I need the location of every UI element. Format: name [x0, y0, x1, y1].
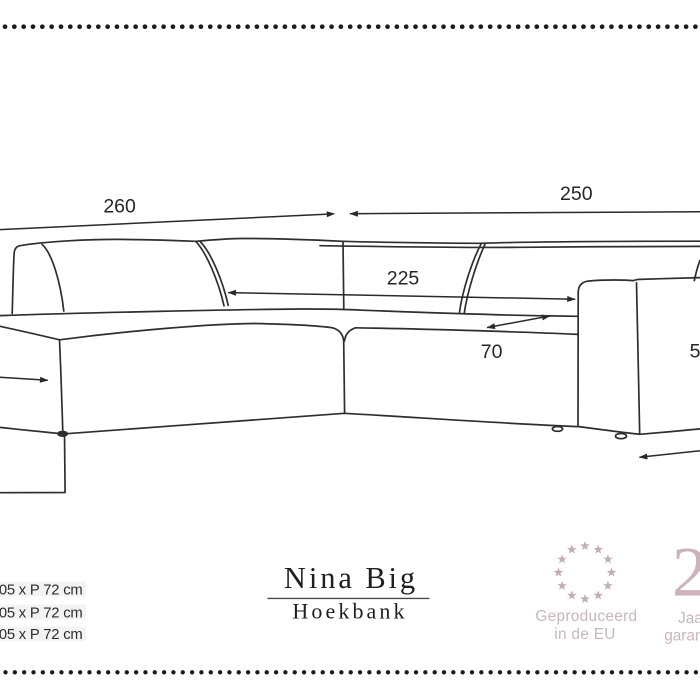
svg-text:Nina Big: Nina Big [284, 561, 418, 595]
svg-text:Geproduceerd: Geproduceerd [535, 608, 637, 625]
svg-text:250: 250 [560, 183, 593, 205]
svg-text:Jaar: Jaar [678, 610, 700, 627]
svg-text:260: 260 [103, 195, 136, 217]
svg-text:225: 225 [387, 268, 420, 290]
svg-text:105 x P 72 cm: 105 x P 72 cm [0, 627, 83, 643]
svg-text:garantie: garantie [664, 627, 700, 644]
svg-text:105 x P 72 cm: 105 x P 72 cm [0, 583, 83, 599]
svg-text:50: 50 [690, 341, 700, 363]
svg-text:2: 2 [672, 534, 700, 612]
svg-text:Hoekbank: Hoekbank [292, 598, 407, 623]
svg-text:105 x P 72 cm: 105 x P 72 cm [0, 606, 83, 622]
svg-text:70: 70 [481, 341, 503, 363]
svg-text:in de EU: in de EU [554, 626, 615, 643]
